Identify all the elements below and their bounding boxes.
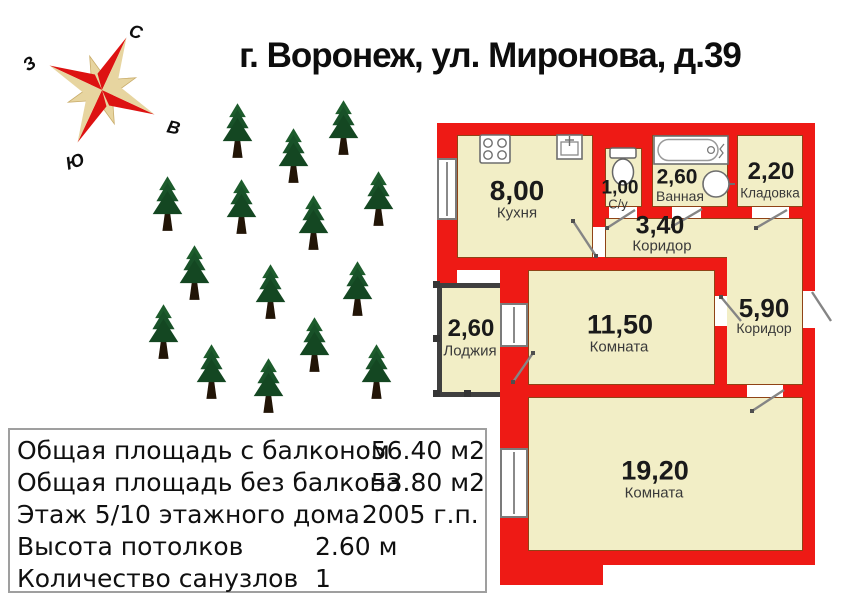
info-label: Количество санузлов: [17, 563, 313, 595]
wc-area-label: 1,00: [602, 179, 639, 198]
info-label: Этаж 5/10 этажного дома: [17, 499, 360, 531]
loggia-name-label: Лоджия: [443, 344, 496, 359]
info-value: 56.40 м2: [369, 435, 485, 467]
bathroom-name-label: Ванная: [656, 189, 704, 203]
living2-area-label: 19,20: [621, 458, 689, 485]
corridor2-area-label: 5,90: [739, 295, 790, 321]
balcony-post: [433, 335, 440, 342]
tree-icon: [329, 100, 359, 155]
bathroom-area-label: 2,60: [657, 167, 698, 188]
doorway-storage: [752, 207, 789, 218]
tree-icon: [180, 245, 210, 300]
window-frame: [446, 162, 448, 216]
tree-icon: [149, 304, 179, 359]
tree-icon: [300, 317, 330, 372]
tree-icon: [153, 176, 183, 231]
info-box: Общая площадь с балконом 56.40 м2 Общая …: [8, 428, 487, 593]
compass-star: [25, 13, 179, 167]
window-frame: [513, 452, 515, 514]
doorway-kitchen: [593, 227, 605, 257]
info-value: 2005 г.п.: [360, 499, 479, 531]
living1-name-label: Комната: [590, 340, 649, 355]
loggia-area-label: 2,60: [448, 317, 495, 341]
corridor1-name-label: Коридор: [632, 239, 691, 254]
window-living2: [500, 448, 528, 518]
info-row: Высота потолков 2.60 м: [17, 531, 485, 563]
tree-icon: [299, 195, 329, 250]
flyer-canvas: г. Воронеж, ул. Миронова, д.39 С З В Ю: [0, 0, 850, 600]
window-kitchen: [437, 158, 457, 220]
balcony-post: [433, 281, 440, 288]
compass-east-label: В: [165, 116, 182, 138]
tree-icon: [364, 171, 394, 226]
storage-area-label: 2,20: [748, 160, 795, 184]
doorway-living2: [747, 385, 783, 397]
window-frame: [513, 307, 515, 343]
tree-icon: [362, 344, 392, 399]
doorway-entrance: [803, 291, 815, 328]
tree-icon: [254, 358, 284, 413]
living2-name-label: Комната: [625, 486, 684, 501]
tree-icon: [343, 261, 373, 316]
window-living1: [500, 303, 528, 347]
storage-name-label: Кладовка: [740, 186, 800, 200]
compass-north-label: С: [127, 21, 146, 44]
info-label: Общая площадь с балконом: [17, 435, 369, 467]
bottom-step-wall: [500, 551, 603, 585]
kitchen-name-label: Кухня: [497, 206, 537, 221]
tree-icon: [223, 103, 253, 158]
tree-icon: [279, 128, 309, 183]
info-row: Количество санузлов 1: [17, 563, 485, 595]
info-value: 2.60 м: [313, 531, 397, 563]
wc-name-label: С/у: [608, 198, 628, 211]
info-value: 53.80 м2: [369, 467, 485, 499]
balcony-post: [433, 390, 440, 397]
page-title: г. Воронеж, ул. Миронова, д.39: [180, 36, 800, 76]
doorway-living1: [715, 296, 727, 326]
compass-west-label: З: [20, 52, 40, 75]
info-row: Общая площадь без балкона 53.80 м2: [17, 467, 485, 499]
info-label: Высота потолков: [17, 531, 313, 563]
info-value: 1: [313, 563, 331, 595]
living1-area-label: 11,50: [587, 312, 653, 339]
compass-south-label: Ю: [63, 149, 87, 173]
info-row: Общая площадь с балконом 56.40 м2: [17, 435, 485, 467]
info-label: Общая площадь без балкона: [17, 467, 369, 499]
balcony-post: [464, 390, 471, 397]
compass-rose: С З В Ю: [20, 8, 190, 173]
tree-icon: [227, 179, 257, 234]
tree-icon: [197, 344, 227, 399]
corridor1-area-label: 3,40: [636, 214, 685, 239]
corridor2-name-label: Коридор: [736, 321, 791, 335]
info-row: Этаж 5/10 этажного дома 2005 г.п.: [17, 499, 485, 531]
kitchen-area-label: 8,00: [490, 177, 545, 205]
notch-above-loggia: [457, 270, 500, 283]
tree-icon: [256, 264, 286, 319]
